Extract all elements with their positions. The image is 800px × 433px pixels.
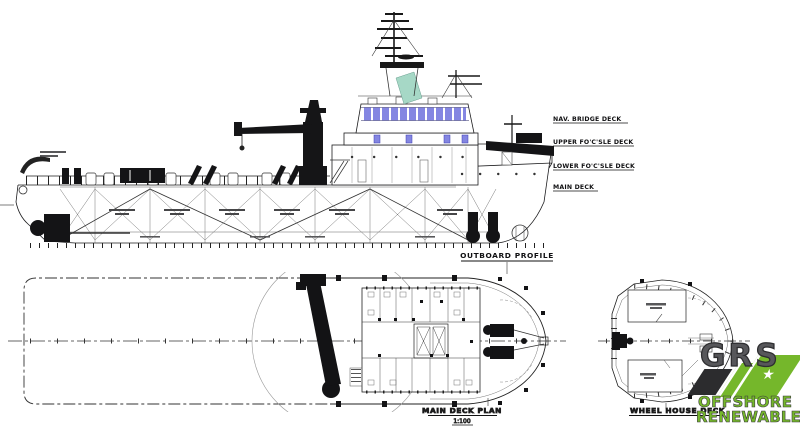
stern-davit — [20, 157, 50, 174]
vessel-drawing: NAV. BRIDGE DECK UPPER FO'C'SLE DECK LOW… — [0, 0, 800, 433]
propeller — [30, 220, 46, 236]
logo-grs-text: GRS — [700, 341, 781, 372]
deck-label-main-deck: MAIN DECK — [553, 184, 594, 191]
bow-gear — [502, 115, 542, 165]
main-deck-plan-title: MAIN DECK PLAN 1:100 — [422, 398, 502, 425]
aft-mast — [442, 70, 482, 98]
deck-label-upper-focsle: UPPER FO'C'SLE DECK — [553, 139, 633, 146]
rudder — [44, 214, 70, 242]
bow-thruster — [512, 225, 528, 241]
stern-roller — [19, 186, 27, 194]
grs-offshore-renewables-logo: ★ GRS OFFSHORE RENEWABLES — [690, 343, 800, 433]
logo-renewables-text: RENEWABLES — [696, 410, 800, 425]
accommodation-block — [350, 288, 480, 392]
svg-text:MAIN DECK PLAN: MAIN DECK PLAN — [422, 406, 502, 415]
windlass — [516, 133, 542, 143]
outboard-profile — [0, 12, 554, 246]
deck-crane-plan — [296, 274, 341, 398]
bow-bulwark — [486, 141, 554, 156]
outboard-profile-title: OUTBOARD PROFILE — [460, 251, 554, 274]
main-deck-plan: MAIN DECK PLAN 1:100 — [8, 253, 566, 429]
svg-text:1:100: 1:100 — [453, 418, 470, 425]
svg-text:OUTBOARD PROFILE: OUTBOARD PROFILE — [460, 251, 554, 260]
deck-fittings — [86, 173, 290, 185]
wheelhouse-room-top — [628, 290, 686, 322]
ladder — [350, 368, 362, 386]
foremast-plan — [521, 338, 527, 344]
deck-label-lower-focsle: LOWER FO'C'SLE DECK — [553, 163, 635, 170]
ga-drawing-sheet: NAV. BRIDGE DECK UPPER FO'C'SLE DECK LOW… — [0, 0, 800, 433]
deck-label-nav-bridge: NAV. BRIDGE DECK — [553, 116, 621, 123]
engine-machinery — [466, 212, 528, 243]
deck-labels: NAV. BRIDGE DECK UPPER FO'C'SLE DECK LOW… — [553, 116, 635, 191]
